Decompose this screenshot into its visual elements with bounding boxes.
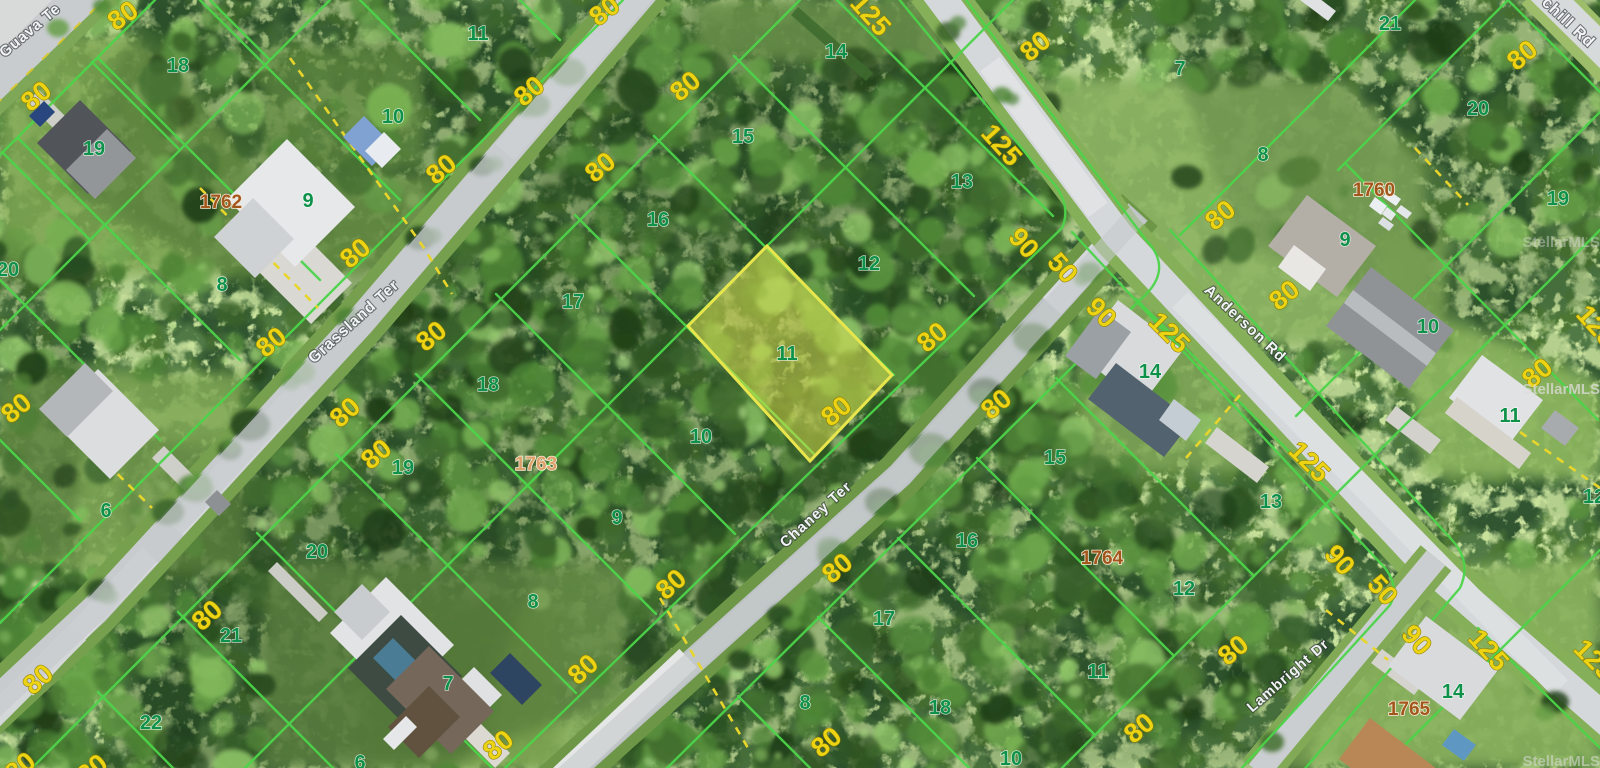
svg-text:14: 14 xyxy=(1139,361,1162,383)
svg-text:1763: 1763 xyxy=(515,454,557,475)
svg-text:9: 9 xyxy=(611,507,622,529)
svg-text:10: 10 xyxy=(1000,748,1022,768)
svg-text:16: 16 xyxy=(647,209,669,231)
svg-text:9: 9 xyxy=(1339,229,1350,251)
svg-text:11: 11 xyxy=(776,343,797,365)
svg-text:20: 20 xyxy=(306,541,328,563)
svg-text:10: 10 xyxy=(1417,316,1439,338)
svg-text:15: 15 xyxy=(1044,447,1066,469)
svg-text:12: 12 xyxy=(858,253,880,275)
svg-text:6: 6 xyxy=(100,500,111,522)
svg-text:21: 21 xyxy=(1379,13,1401,35)
svg-text:6: 6 xyxy=(354,752,365,768)
svg-text:1764: 1764 xyxy=(1081,548,1124,569)
svg-text:20: 20 xyxy=(0,259,19,281)
svg-text:8: 8 xyxy=(527,591,538,613)
svg-text:12: 12 xyxy=(1583,486,1600,508)
svg-text:13: 13 xyxy=(951,171,973,193)
svg-text:19: 19 xyxy=(1547,188,1569,210)
svg-text:14: 14 xyxy=(1442,681,1465,703)
svg-text:8: 8 xyxy=(1257,144,1268,166)
svg-text:19: 19 xyxy=(392,457,414,479)
svg-text:16: 16 xyxy=(956,530,978,552)
svg-text:StellarMLS: StellarMLS xyxy=(1522,753,1600,768)
svg-text:20: 20 xyxy=(1467,98,1489,120)
svg-text:7: 7 xyxy=(1174,58,1185,80)
svg-text:18: 18 xyxy=(477,374,499,396)
svg-text:21: 21 xyxy=(220,625,242,647)
svg-text:8: 8 xyxy=(216,274,227,296)
svg-text:11: 11 xyxy=(1087,661,1108,683)
svg-text:17: 17 xyxy=(562,291,584,313)
svg-text:1765: 1765 xyxy=(1388,699,1431,720)
svg-text:18: 18 xyxy=(167,55,189,77)
svg-text:14: 14 xyxy=(825,41,848,63)
svg-text:15: 15 xyxy=(732,126,754,148)
svg-text:1762: 1762 xyxy=(200,192,242,213)
svg-text:17: 17 xyxy=(873,608,895,630)
svg-text:13: 13 xyxy=(1260,491,1282,513)
svg-text:8: 8 xyxy=(799,692,810,714)
svg-text:19: 19 xyxy=(83,138,105,160)
svg-text:18: 18 xyxy=(929,697,951,719)
svg-text:7: 7 xyxy=(442,673,453,695)
svg-text:StellarMLS: StellarMLS xyxy=(1522,234,1600,251)
svg-text:10: 10 xyxy=(382,106,404,128)
svg-text:11: 11 xyxy=(467,23,488,45)
svg-text:22: 22 xyxy=(140,712,162,734)
svg-text:StellarMLS: StellarMLS xyxy=(1522,381,1600,398)
svg-text:11: 11 xyxy=(1499,405,1520,427)
svg-text:10: 10 xyxy=(690,426,712,448)
svg-text:1760: 1760 xyxy=(1353,180,1395,201)
svg-text:12: 12 xyxy=(1173,578,1195,600)
svg-text:9: 9 xyxy=(302,190,313,212)
